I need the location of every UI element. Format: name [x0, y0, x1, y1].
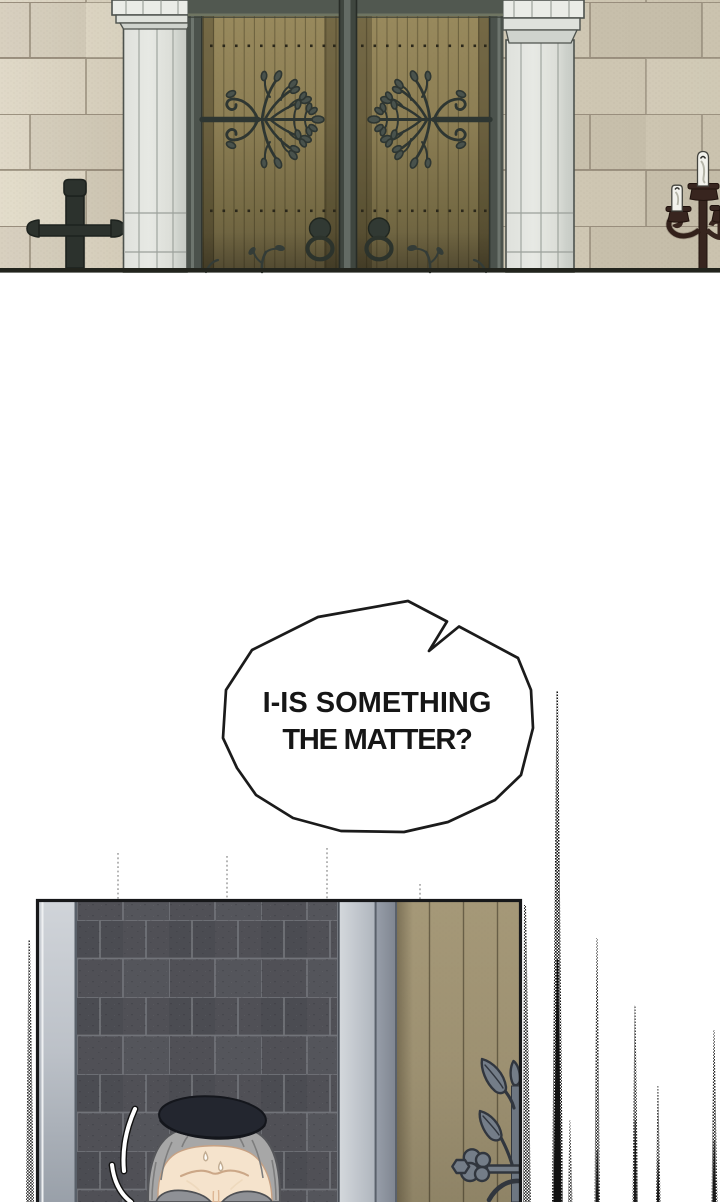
svg-text:I-IS SOMETHING: I-IS SOMETHING [263, 687, 492, 719]
svg-text:THE MATTER?: THE MATTER? [282, 724, 472, 756]
